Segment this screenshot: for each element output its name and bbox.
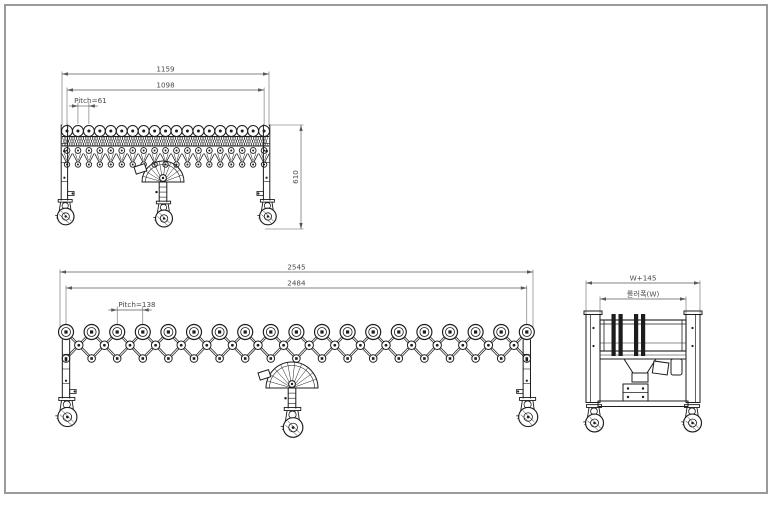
dim-pitch-retracted: Pitch=61 — [74, 96, 107, 105]
dim-height-retracted: 610 — [291, 170, 300, 184]
dim-pitch-extended: Pitch=138 — [118, 300, 156, 309]
dim-overall-extended: 2545 — [287, 262, 305, 271]
view-retracted: 11591098Pitch=61610 — [55, 64, 303, 229]
dim-overall-retracted: 1159 — [156, 64, 175, 73]
view-end: W+145롤러폭(W) — [583, 273, 702, 432]
dim-roller-span-extended: 2484 — [287, 278, 306, 287]
dim-roller-width-end: 롤러폭(W) — [627, 289, 660, 298]
view-extended: 25452484Pitch=138 — [55, 262, 537, 437]
dim-roller-span-retracted: 1098 — [156, 80, 175, 89]
dim-overall-end: W+145 — [630, 273, 657, 282]
cad-drawing: 11591098Pitch=6161025452484Pitch=138W+14… — [0, 0, 781, 515]
drawing-page: 11591098Pitch=6161025452484Pitch=138W+14… — [0, 0, 781, 515]
